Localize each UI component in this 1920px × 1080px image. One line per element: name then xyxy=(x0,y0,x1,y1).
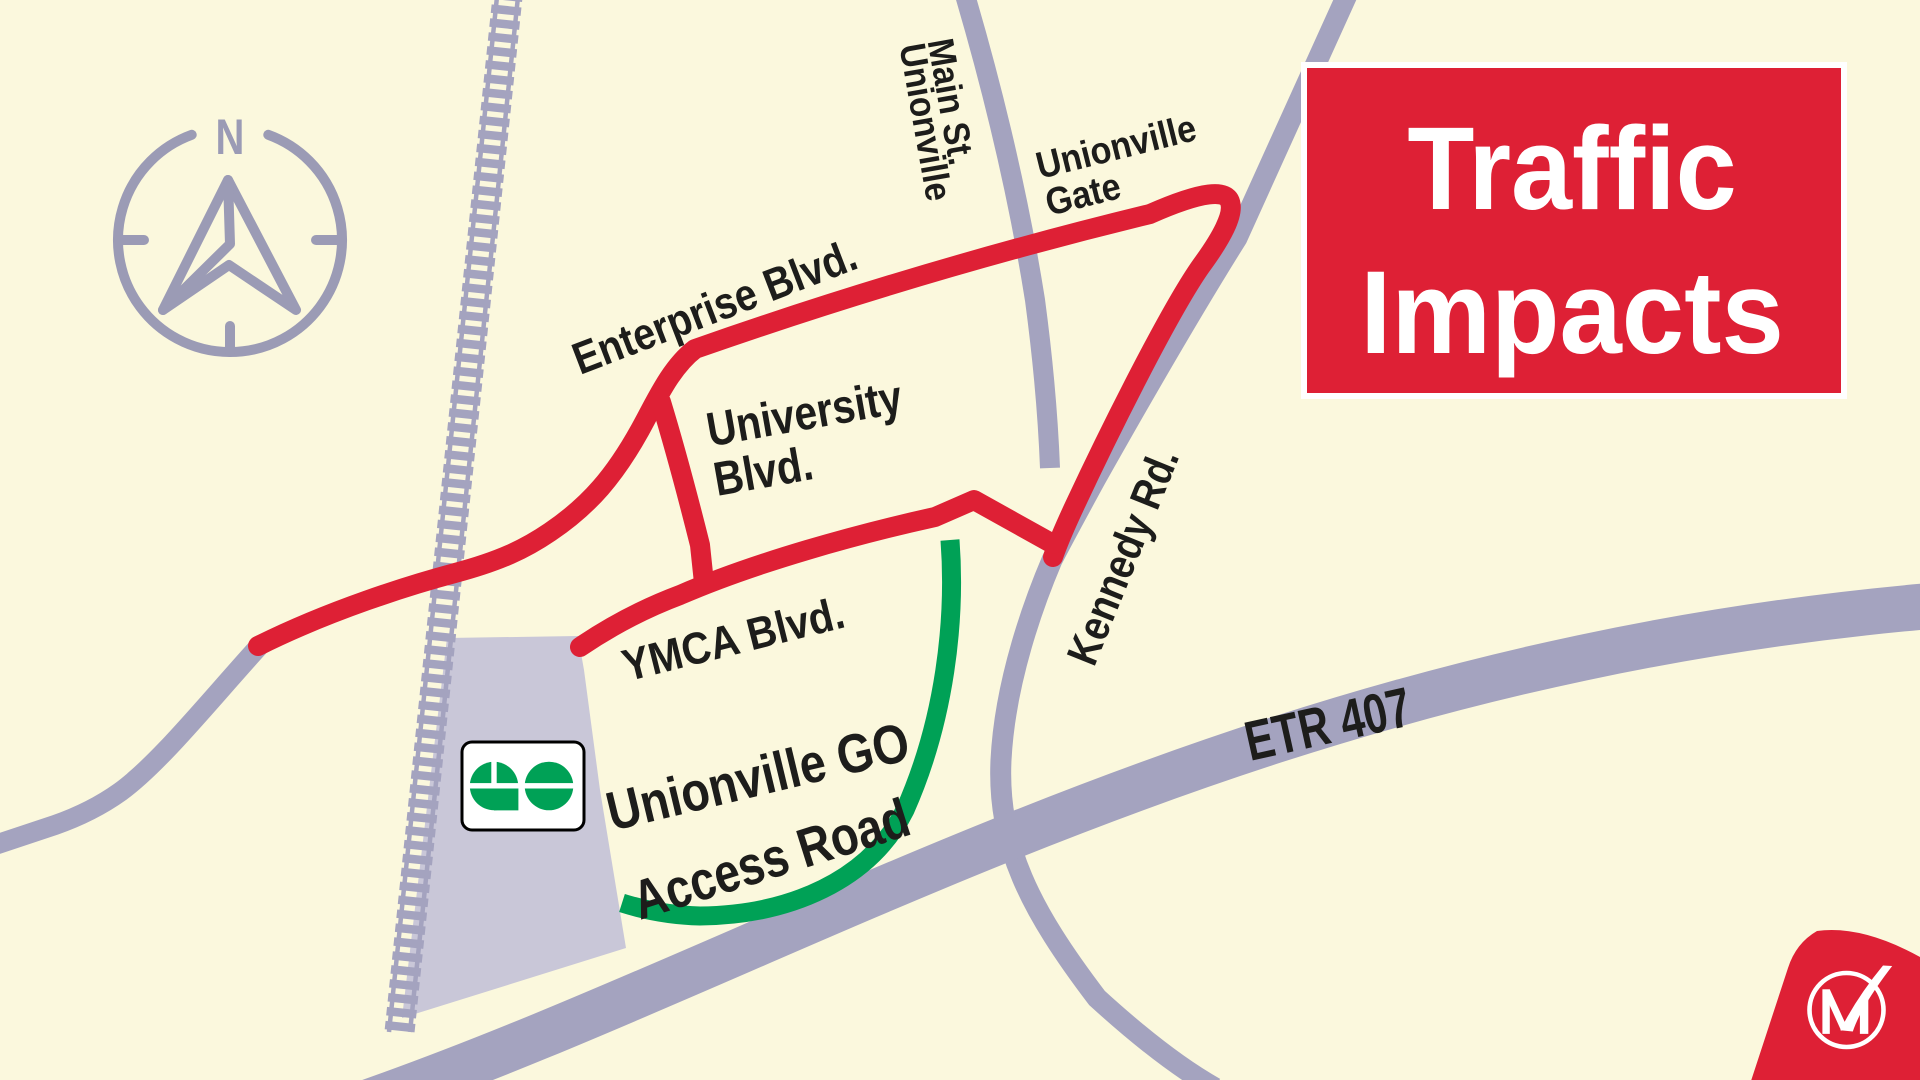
svg-text:Impacts: Impacts xyxy=(1360,247,1784,378)
svg-text:Traffic: Traffic xyxy=(1407,103,1736,235)
svg-text:N: N xyxy=(216,109,245,165)
